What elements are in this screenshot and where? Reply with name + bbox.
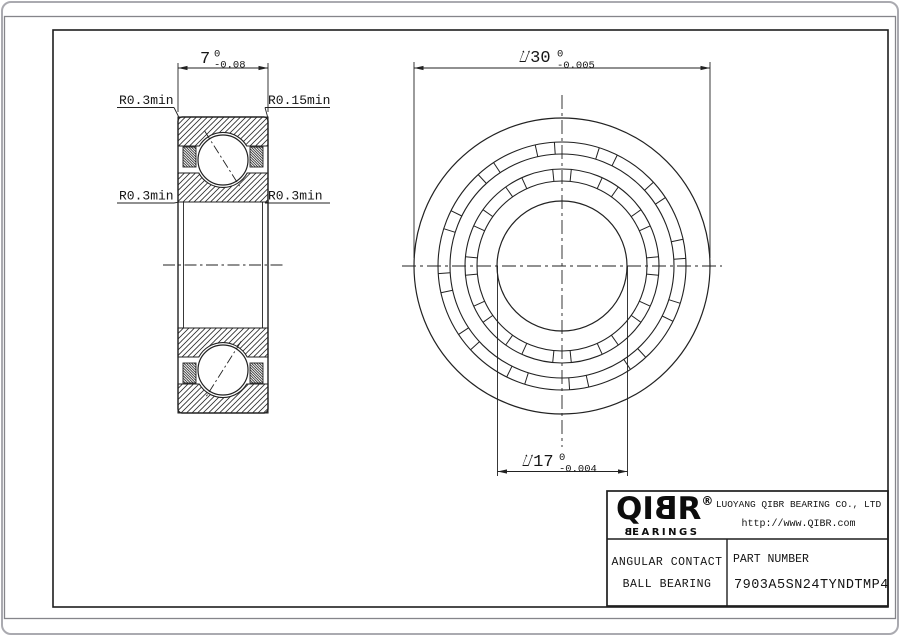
arrowhead-left [178,66,188,70]
bore-dim-value: ⌰17 [522,453,554,472]
part-number-value: 7903A5SN24TYNDTMP4 [734,578,884,593]
bearing-drawing-sheet: { "left_view": { "width_dim": { "value":… [0,0,900,636]
ball-bottom [198,345,248,395]
width-dim-tol-lower: -0.08 [214,60,246,72]
drawing-canvas: 7 0 -0.08 R0.3min R0.15min R0.3min R0.3m… [0,0,900,636]
logo-subtitle: BEARINGS [622,527,699,538]
logo-text: QI [616,491,654,527]
part-number-label: PART NUMBER [733,553,809,566]
logo-mirrored-b: B [654,494,678,525]
od-dim-value: ⌰30 [519,49,551,68]
cage-section [250,147,263,167]
section-view [163,117,283,413]
arrowhead-right [259,66,269,70]
arrowhead-left [414,66,424,70]
cage-section [183,147,196,167]
arrowhead-left [498,469,508,473]
product-name-line2: BALL BEARING [607,578,727,591]
logo-sub-mirrored-b: B [622,527,632,538]
radius-label-mid-right: R0.3min [268,189,323,204]
company-name: LUOYANG QIBR BEARING CO., LTD [706,499,891,510]
company-website: http://www.QIBR.com [706,519,891,530]
product-name-line1: ANGULAR CONTACT [607,556,727,569]
arrowhead-right [618,469,628,473]
arrowhead-right [701,66,711,70]
company-logo: QIBR® [616,494,713,525]
bore-dim-tol-upper: 0 [559,452,565,464]
cage-section [183,363,196,383]
radius-label-top-right: R0.15min [268,93,330,108]
od-dim-tol-lower: -0.005 [557,60,595,72]
logo-sub-text: EARINGS [632,527,699,538]
bore-dimension [498,266,628,476]
od-dim-tol-upper: 0 [557,49,563,61]
radius-label-mid-left: R0.3min [119,189,174,204]
radius-label-top-left: R0.3min [119,93,174,108]
bore-dim-tol-lower: -0.004 [559,464,597,476]
front-view [402,95,722,447]
logo-text: R [678,491,702,527]
ball-top [198,135,248,185]
width-dim-value: 7 [200,50,210,69]
cage-section [250,363,263,383]
